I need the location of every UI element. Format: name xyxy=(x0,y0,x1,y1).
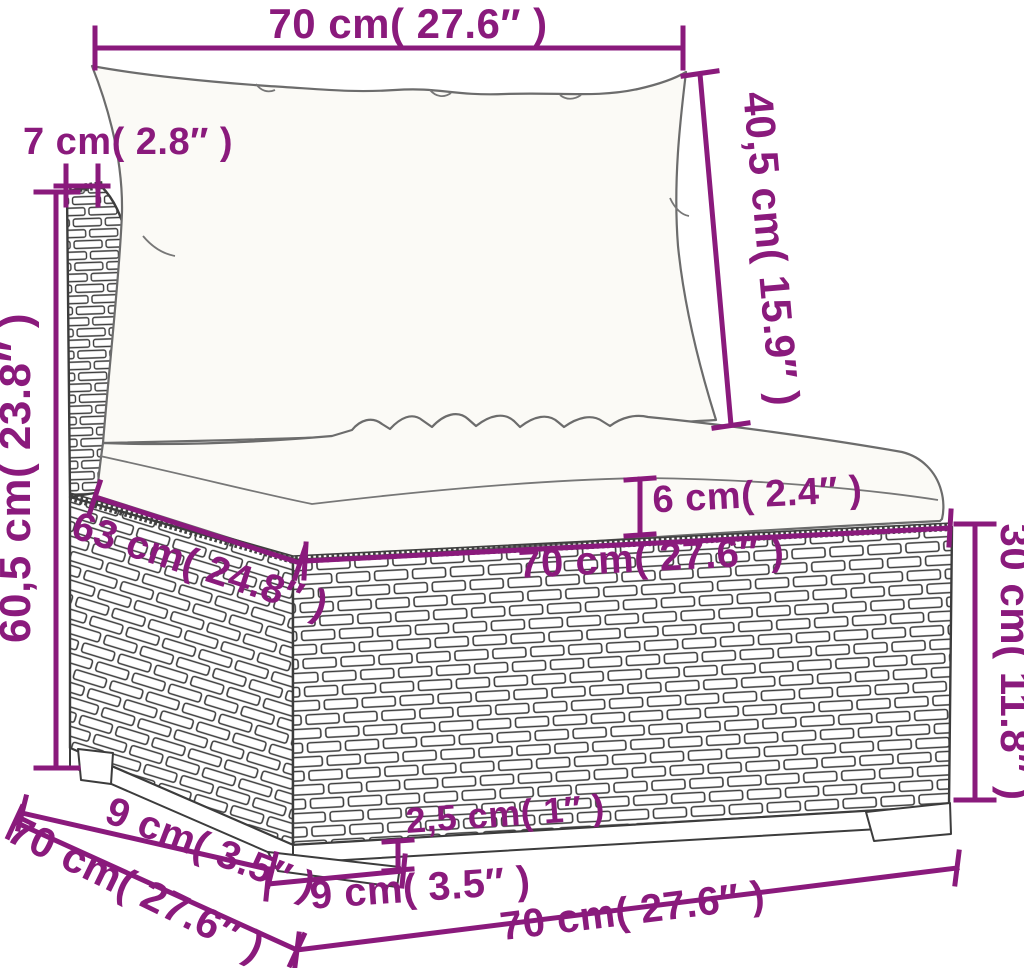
dim-label-back-panel-thickness: 7 cm( 2.8″ ) xyxy=(23,121,233,163)
dim-line-base-height xyxy=(956,524,994,800)
dim-label-overall-height: 60,5 cm( 23.8″ ) xyxy=(0,313,40,643)
dim-label-backrest-height: 40,5 cm( 15.9″ ) xyxy=(734,90,808,408)
foot-left-back xyxy=(78,749,113,784)
dimension-diagram-canvas: 70 cm( 27.6″ ) 7 cm( 2.8″ ) 60,5 cm( 23.… xyxy=(0,0,1024,968)
sofa-dimension-figure: 70 cm( 27.6″ ) 7 cm( 2.8″ ) 60,5 cm( 23.… xyxy=(0,0,1024,968)
dim-label-bottom-width: 70 cm( 27.6″ ) xyxy=(498,873,768,949)
dim-label-top-width: 70 cm( 27.6″ ) xyxy=(268,0,547,47)
dim-label-base-height: 30 cm( 11.8″ ) xyxy=(992,524,1024,801)
